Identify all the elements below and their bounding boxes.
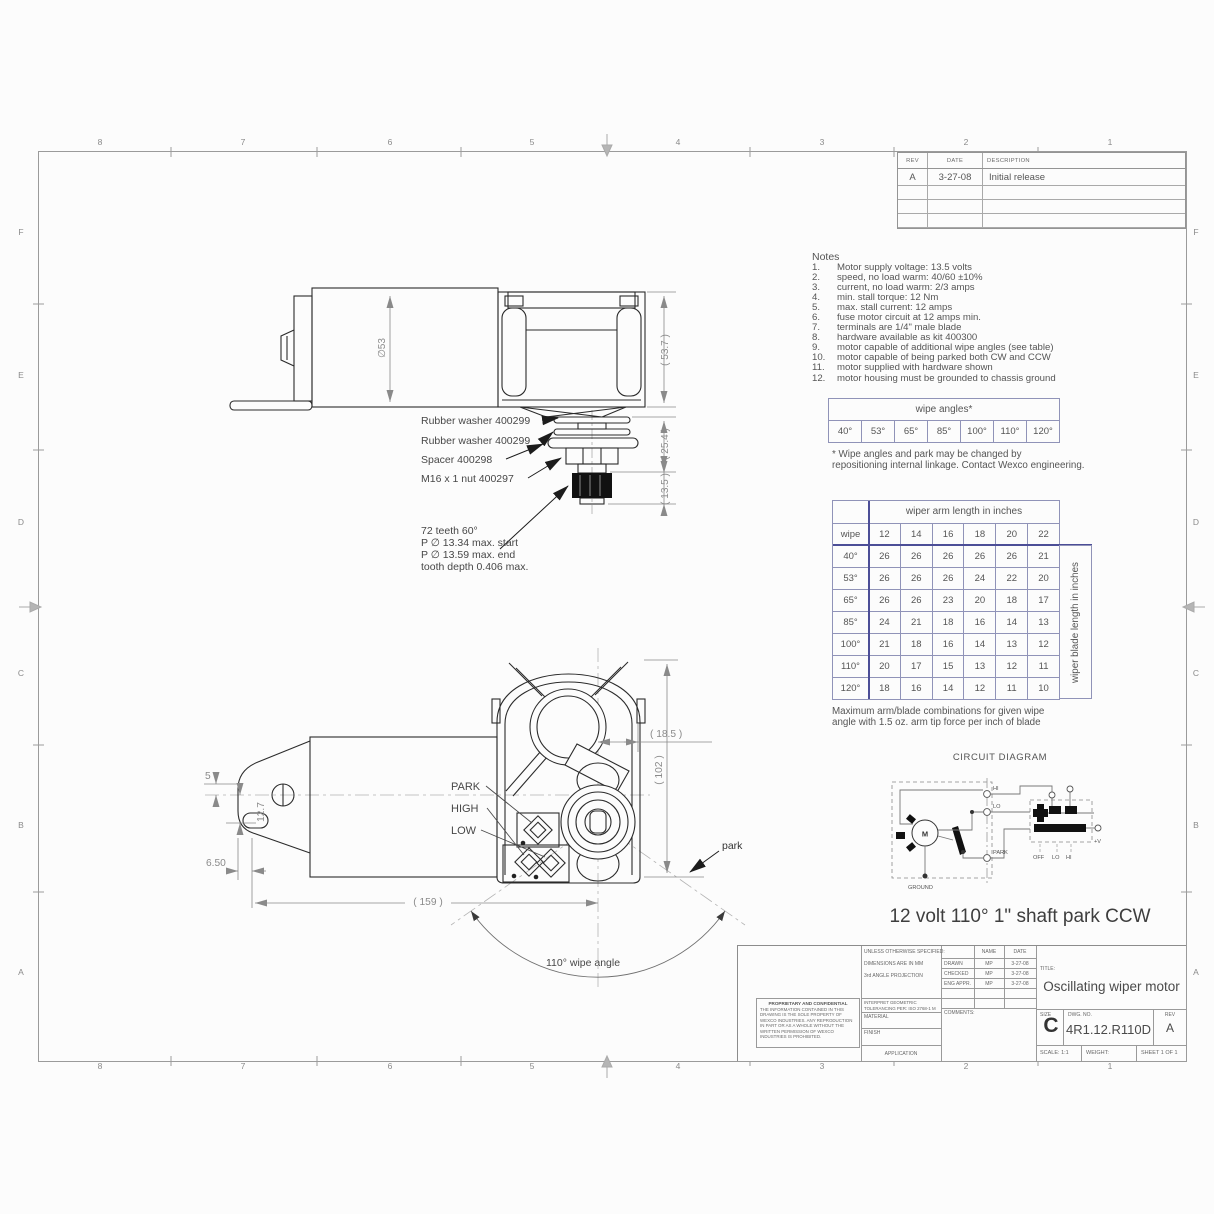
checked-date: 3-27-08: [1004, 971, 1036, 977]
thick-divider-horizontal: [833, 544, 1092, 546]
finish-label: FINISH: [864, 1030, 880, 1036]
arm-value-cell: 20: [1028, 568, 1059, 589]
projection-label: 3rd ANGLE PROJECTION: [864, 973, 923, 979]
arm-value-cell: 15: [933, 656, 965, 677]
notes-section: Notes 1.Motor supply voltage: 13.5 volts…: [812, 251, 1142, 384]
arm-value-cell: 26: [869, 546, 901, 567]
rev-table-empty-row: [898, 200, 1185, 214]
description-header: DESCRIPTION: [983, 153, 1185, 168]
zone-top-5: 5: [530, 137, 535, 147]
zone-top-2: 2: [964, 137, 969, 147]
wipe-angle-cell: 110°: [994, 421, 1027, 442]
label-rubber-washer-1: Rubber washer 400299: [421, 415, 530, 427]
name-header: NAME: [974, 949, 1004, 955]
arm-col-header: 22: [1028, 524, 1059, 545]
dim-dia53: ∅53: [377, 338, 388, 358]
zone-top-7: 7: [241, 137, 246, 147]
arm-wipe-cell: 53°: [833, 568, 869, 589]
zone-left-E: E: [18, 370, 24, 380]
arm-table-row: 100°211816141312: [833, 634, 1059, 656]
label-lo: LO: [993, 804, 1001, 810]
label-rubber-washer-2: Rubber washer 400299: [421, 435, 530, 447]
zone-bottom-3: 3: [820, 1061, 825, 1071]
dim-13-5: ( 13.5 ): [660, 473, 671, 505]
arm-corner-cell: [833, 501, 869, 523]
wipe-angle-cell: 40°: [829, 421, 862, 442]
dim-159: ( 159 ): [413, 897, 442, 908]
label-ground: GROUND: [908, 885, 933, 891]
wipe-angle-cell: 53°: [862, 421, 895, 442]
zone-right-B: B: [1193, 820, 1199, 830]
zone-right-C: C: [1193, 668, 1199, 678]
scale-label: SCALE: 1:1: [1040, 1050, 1069, 1056]
arm-table-row: 53°262626242220: [833, 568, 1059, 590]
arm-value-cell: 26: [901, 568, 933, 589]
arm-wipe-cell: 40°: [833, 546, 869, 567]
rev-cell: [928, 214, 983, 227]
rev-cell: [928, 186, 983, 199]
arm-value-cell: 20: [869, 656, 901, 677]
arm-value-cell: 14: [996, 612, 1028, 633]
spacer: [548, 438, 638, 448]
label-teeth-1: 72 teeth 60°: [421, 525, 478, 537]
arm-col-header: 12: [869, 524, 901, 545]
label-teeth-4: tooth depth 0.406 max.: [421, 561, 528, 573]
arm-table-body: 40°26262626262153°26262624222065°2626232…: [833, 546, 1059, 699]
arm-value-cell: 24: [964, 568, 996, 589]
arm-value-cell: 18: [901, 634, 933, 655]
zone-top-6: 6: [388, 137, 393, 147]
label-off: OFF: [1033, 855, 1045, 861]
arm-col-header: 20: [996, 524, 1028, 545]
arm-col-header: 14: [901, 524, 933, 545]
label-plus-v: +V: [1094, 839, 1101, 845]
dim-12-7: 12.7: [256, 802, 267, 822]
label-low-terminal: LOW: [451, 825, 477, 837]
zone-top-3: 3: [820, 137, 825, 147]
drawn-label: DRAWN: [944, 961, 963, 967]
drawing-title: Oscillating wiper motor: [1036, 979, 1187, 994]
motor-body: [312, 288, 498, 407]
caption-line-2: angle with 1.5 oz. arm tip force per inc…: [832, 717, 1152, 728]
proprietary-note: PROPRIETARY AND CONFIDENTIAL THE INFORMA…: [756, 998, 860, 1048]
zone-top-8: 8: [98, 137, 103, 147]
motor-letter: M: [922, 830, 928, 839]
label-teeth-3: P ∅ 13.59 max. end: [421, 549, 515, 561]
label-high-terminal: HIGH: [451, 803, 479, 815]
rev-table-row: A3-27-08Initial release: [898, 169, 1185, 186]
rev-cell: [983, 200, 1185, 213]
arm-value-cell: 10: [1028, 678, 1059, 699]
circuit-diagram: M: [892, 778, 1101, 891]
arm-value-cell: 26: [869, 568, 901, 589]
label-sw-lo: LO: [1052, 855, 1060, 861]
dimensions-mm-label: DIMENSIONS ARE IN MM: [864, 961, 923, 967]
zone-bottom-6: 6: [388, 1061, 393, 1071]
checked-name: MP: [974, 971, 1004, 977]
arm-wipe-cell: 65°: [833, 590, 869, 611]
note-item: 11.motor supplied with hardware shown: [812, 363, 1142, 373]
rev-cell: [983, 186, 1185, 199]
drawn-name: MP: [974, 961, 1004, 967]
arm-value-cell: 16: [901, 678, 933, 699]
dim-5: 5: [205, 771, 211, 782]
label-park-terminal: PARK: [451, 781, 481, 793]
title-block: PROPRIETARY AND CONFIDENTIAL THE INFORMA…: [737, 945, 1186, 1061]
note-text: motor supplied with hardware shown: [837, 363, 1142, 373]
splined-shaft: [572, 473, 612, 498]
zone-bottom-7: 7: [241, 1061, 246, 1071]
arm-col-header: 18: [964, 524, 996, 545]
arm-value-cell: 14: [933, 678, 965, 699]
zone-right-F: F: [1193, 227, 1198, 237]
dim-6-50: 6.50: [206, 858, 226, 869]
rev-cell: [898, 214, 928, 227]
sheet-label: SHEET 1 OF 1: [1141, 1050, 1178, 1056]
arm-value-cell: 24: [869, 612, 901, 633]
zone-bottom-4: 4: [676, 1061, 681, 1071]
wipe-angle-cell: 120°: [1027, 421, 1059, 442]
zone-left-A: A: [18, 967, 24, 977]
eng-appr-name: MP: [974, 981, 1004, 987]
rev-cell: 3-27-08: [928, 169, 983, 185]
arm-value-cell: 26: [933, 546, 965, 567]
blade-length-side-label: wiper blade length in inches: [1059, 545, 1092, 699]
zone-top-1: 1: [1108, 137, 1113, 147]
label-wipe-angle: 110° wipe angle: [546, 957, 620, 969]
rev-header: REV: [898, 153, 928, 168]
interpret-label-2: TOLERANCING PER: ISO 2768-1 M: [864, 1006, 936, 1011]
arm-cols-row: wipe 121416182022: [833, 524, 1059, 546]
arm-value-cell: 21: [901, 612, 933, 633]
revision-table-header: REV DATE DESCRIPTION: [898, 153, 1185, 169]
rev-cell: A: [898, 169, 928, 185]
bracket-plate: [294, 296, 312, 401]
rev-label: REV: [1153, 1012, 1187, 1018]
top-view: ∅53 ( 53.7 ) ( 25.4 ) ( 13.5 ) Rubber wa…: [230, 288, 676, 573]
footnote-line-1: * Wipe angles and park may be changed by: [832, 449, 1162, 460]
note-text: motor housing must be grounded to chassi…: [837, 374, 1142, 384]
rev-cell: [928, 200, 983, 213]
size-value: C: [1038, 1014, 1064, 1038]
arm-length-table: wiper arm length in inches wipe 12141618…: [832, 500, 1060, 700]
arm-value-cell: 18: [996, 590, 1028, 611]
footnote-line-2: repositioning internal linkage. Contact …: [832, 460, 1162, 471]
interpret-label-1: INTERPRET GEOMETRIC: [864, 1000, 917, 1005]
zone-top-4: 4: [676, 137, 681, 147]
zone-left-D: D: [18, 517, 24, 527]
zone-right-D: D: [1193, 517, 1199, 527]
rev-value: A: [1153, 1021, 1187, 1035]
rev-cell: [898, 186, 928, 199]
arm-wipe-cell: 110°: [833, 656, 869, 677]
zone-left-B: B: [18, 820, 24, 830]
arm-value-cell: 12: [996, 656, 1028, 677]
application-label: APPLICATION: [861, 1051, 941, 1057]
wipe-angle-cell: 100°: [961, 421, 994, 442]
zone-bottom-2: 2: [964, 1061, 969, 1071]
arm-table-row: 110°201715131211: [833, 656, 1059, 678]
zone-bottom-1: 1: [1108, 1061, 1113, 1071]
arm-col-header: 16: [933, 524, 965, 545]
arm-value-cell: 26: [869, 590, 901, 611]
arm-wipe-cell: 120°: [833, 678, 869, 699]
wipe-angle-cell: 85°: [928, 421, 961, 442]
date-header: DATE: [1004, 949, 1036, 955]
dim-18-5: ( 18.5 ): [650, 729, 682, 740]
arm-value-cell: 21: [1028, 546, 1059, 567]
note-number: 12.: [812, 374, 837, 384]
dim-25-4: ( 25.4 ): [660, 428, 671, 460]
zone-bottom-8: 8: [98, 1061, 103, 1071]
arm-wipe-cell: 85°: [833, 612, 869, 633]
thick-divider-vertical: [868, 501, 870, 699]
wipe-angle-cell: 65°: [895, 421, 928, 442]
notes-list: 1.Motor supply voltage: 13.5 volts2.spee…: [812, 263, 1142, 384]
eng-appr-date: 3-27-08: [1004, 981, 1036, 987]
rev-table-body: A3-27-08Initial release: [898, 169, 1185, 228]
label-spacer: Spacer 400298: [421, 454, 492, 466]
label-hi: HI: [993, 786, 999, 792]
label-nut: M16 x 1 nut 400297: [421, 473, 514, 485]
note-item: 12.motor housing must be grounded to cha…: [812, 374, 1142, 384]
arm-table-caption: Maximum arm/blade combinations for given…: [832, 706, 1152, 728]
revision-table: REV DATE DESCRIPTION A3-27-08Initial rel…: [897, 152, 1186, 229]
arm-value-cell: 26: [933, 568, 965, 589]
unless-label: UNLESS OTHERWISE SPECIFIED:: [864, 949, 945, 955]
arm-table-title: wiper arm length in inches: [869, 501, 1059, 523]
rev-cell: [898, 200, 928, 213]
zone-right-E: E: [1193, 370, 1199, 380]
caption-line-1: Maximum arm/blade combinations for given…: [832, 706, 1152, 717]
arm-value-cell: 21: [869, 634, 901, 655]
arm-value-cell: 26: [901, 546, 933, 567]
proprietary-body: THE INFORMATION CONTAINED IN THIS DRAWIN…: [760, 1007, 856, 1039]
arm-value-cell: 12: [1028, 634, 1059, 655]
zone-left-F: F: [18, 227, 23, 237]
drawn-date: 3-27-08: [1004, 961, 1036, 967]
label-teeth-2: P ∅ 13.34 max. start: [421, 537, 518, 549]
arm-wipe-cell: 100°: [833, 634, 869, 655]
zone-left-C: C: [18, 668, 24, 678]
arm-value-cell: 12: [964, 678, 996, 699]
wipe-angles-title: wipe angles*: [829, 399, 1059, 421]
front-view: PARK HIGH LOW 5 12.7 6.50 ( 1: [204, 648, 745, 988]
wipe-angles-table: wipe angles* 40°53°65°85°100°110°120°: [828, 398, 1060, 443]
arm-value-cell: 17: [1028, 590, 1059, 611]
arm-value-cell: 26: [901, 590, 933, 611]
arm-value-cell: 17: [901, 656, 933, 677]
zone-bottom-5: 5: [530, 1061, 535, 1071]
circuit-diagram-title: CIRCUIT DIAGRAM: [925, 752, 1075, 763]
arm-value-cell: 26: [996, 546, 1028, 567]
arm-table-row: 65°262623201817: [833, 590, 1059, 612]
weight-label: WEIGHT:: [1086, 1050, 1109, 1056]
rev-table-empty-row: [898, 186, 1185, 200]
arm-value-cell: 18: [933, 612, 965, 633]
rev-cell: [983, 214, 1185, 227]
wipe-angle-row: 40°53°65°85°100°110°120°: [829, 421, 1059, 442]
title-label: TITLE:: [1040, 966, 1055, 972]
front-bracket: [238, 741, 310, 853]
arm-table-row: 40°262626262621: [833, 546, 1059, 568]
arm-value-cell: 20: [964, 590, 996, 611]
label-park: PARK: [993, 850, 1008, 856]
eng-appr-label: ENG APPR.: [944, 981, 971, 987]
dwg-no-value: 4R1.12.R110D: [1064, 1022, 1153, 1037]
arm-value-cell: 11: [1028, 656, 1059, 677]
arm-value-cell: 26: [964, 546, 996, 567]
wipe-angles-footnote: * Wipe angles and park may be changed by…: [832, 449, 1162, 471]
arm-value-cell: 18: [869, 678, 901, 699]
arm-value-cell: 14: [964, 634, 996, 655]
checked-label: CHECKED: [944, 971, 968, 977]
arm-wipe-header: wipe: [833, 524, 869, 545]
date-header: DATE: [928, 153, 983, 168]
arm-table-row: 85°242118161413: [833, 612, 1059, 634]
arm-value-cell: 13: [996, 634, 1028, 655]
arm-value-cell: 11: [996, 678, 1028, 699]
arm-value-cell: 22: [996, 568, 1028, 589]
arm-value-cell: 23: [933, 590, 965, 611]
note-number: 11.: [812, 363, 837, 373]
arm-value-cell: 16: [933, 634, 965, 655]
zone-right-A: A: [1193, 967, 1199, 977]
arm-table-row: 120°181614121110: [833, 678, 1059, 699]
drawing-subtitle: 12 volt 110° 1" shaft park CCW: [870, 906, 1170, 928]
rev-cell: Initial release: [983, 169, 1185, 185]
dwg-no-label: DWG. NO.: [1068, 1012, 1092, 1018]
dim-53-7: ( 53.7 ): [660, 334, 671, 366]
material-label: MATERIAL: [864, 1014, 889, 1020]
label-sw-hi: HI: [1066, 855, 1072, 861]
arm-value-cell: 13: [1028, 612, 1059, 633]
dim-102: ( 102 ): [654, 755, 665, 784]
comments-label: COMMENTS:: [944, 1010, 975, 1016]
arm-value-cell: 13: [964, 656, 996, 677]
blade-length-text: wiper blade length in inches: [1070, 562, 1081, 683]
label-park-position: park: [722, 840, 743, 852]
rev-table-empty-row: [898, 214, 1185, 228]
arm-value-cell: 16: [964, 612, 996, 633]
bracket-foot: [230, 401, 312, 410]
output-shaft: [561, 785, 635, 859]
